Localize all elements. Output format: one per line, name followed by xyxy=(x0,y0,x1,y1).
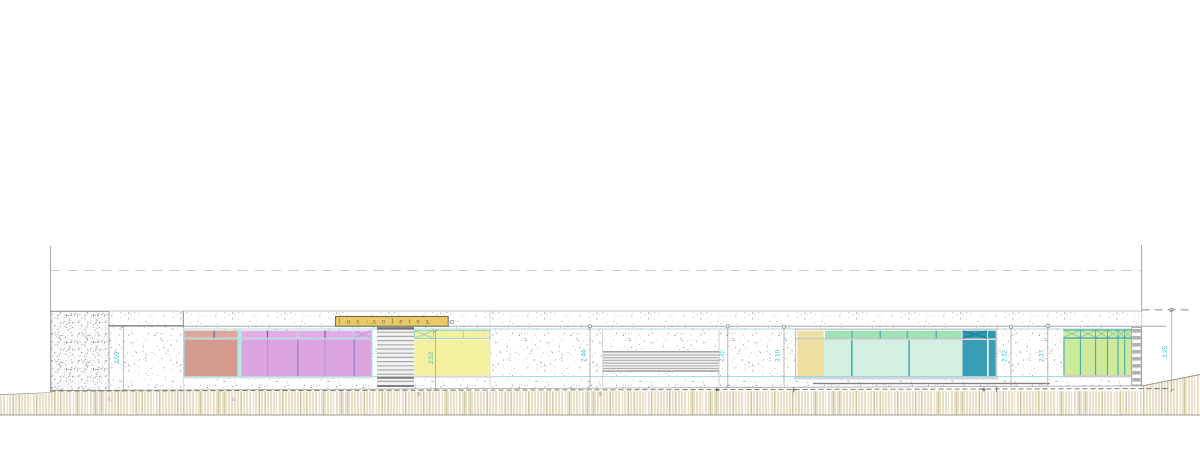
svg-text:2.32: 2.32 xyxy=(1002,349,1009,362)
svg-text:5: 5 xyxy=(599,392,602,398)
svg-text:2.44: 2.44 xyxy=(581,349,588,362)
svg-text:2.37: 2.37 xyxy=(1038,349,1045,362)
svg-text:3.10: 3.10 xyxy=(775,349,782,362)
svg-text:2.52: 2.52 xyxy=(428,351,435,364)
svg-text:2.35: 2.35 xyxy=(718,349,725,362)
svg-text:los soletes: los soletes xyxy=(339,318,435,326)
svg-text:9: 9 xyxy=(417,392,420,398)
svg-text:3.25: 3.25 xyxy=(1162,345,1169,358)
svg-text:2.50: 2.50 xyxy=(114,351,121,364)
